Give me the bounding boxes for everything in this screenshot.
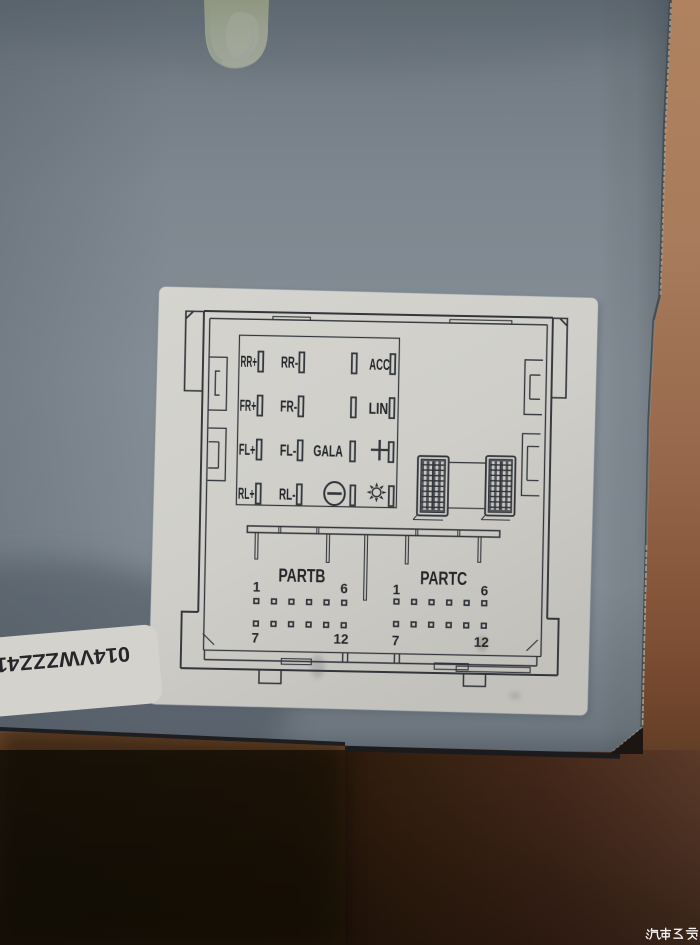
svg-text:FR-: FR- bbox=[280, 398, 297, 415]
svg-text:12: 12 bbox=[333, 632, 348, 647]
svg-text:6: 6 bbox=[340, 581, 348, 596]
svg-text:RR+: RR+ bbox=[240, 354, 257, 371]
svg-text:PARTB: PARTB bbox=[278, 565, 325, 586]
svg-text:6: 6 bbox=[480, 583, 488, 598]
svg-text:12: 12 bbox=[474, 635, 489, 650]
svg-text:7: 7 bbox=[251, 630, 259, 645]
svg-text:RL+: RL+ bbox=[238, 486, 255, 503]
svg-text:PARTC: PARTC bbox=[420, 568, 467, 589]
svg-text:GALA: GALA bbox=[313, 443, 343, 461]
svg-text:7: 7 bbox=[392, 633, 400, 648]
svg-text:FL+: FL+ bbox=[239, 442, 256, 459]
svg-text:1: 1 bbox=[393, 582, 401, 597]
svg-text:RR-: RR- bbox=[281, 354, 298, 371]
svg-text:FR+: FR+ bbox=[240, 398, 257, 415]
svg-text:ACC: ACC bbox=[369, 357, 390, 374]
svg-text:RL-: RL- bbox=[279, 486, 296, 503]
svg-text:LIN: LIN bbox=[368, 401, 388, 418]
svg-text:1: 1 bbox=[253, 579, 261, 594]
svg-text:FL-: FL- bbox=[280, 442, 297, 459]
